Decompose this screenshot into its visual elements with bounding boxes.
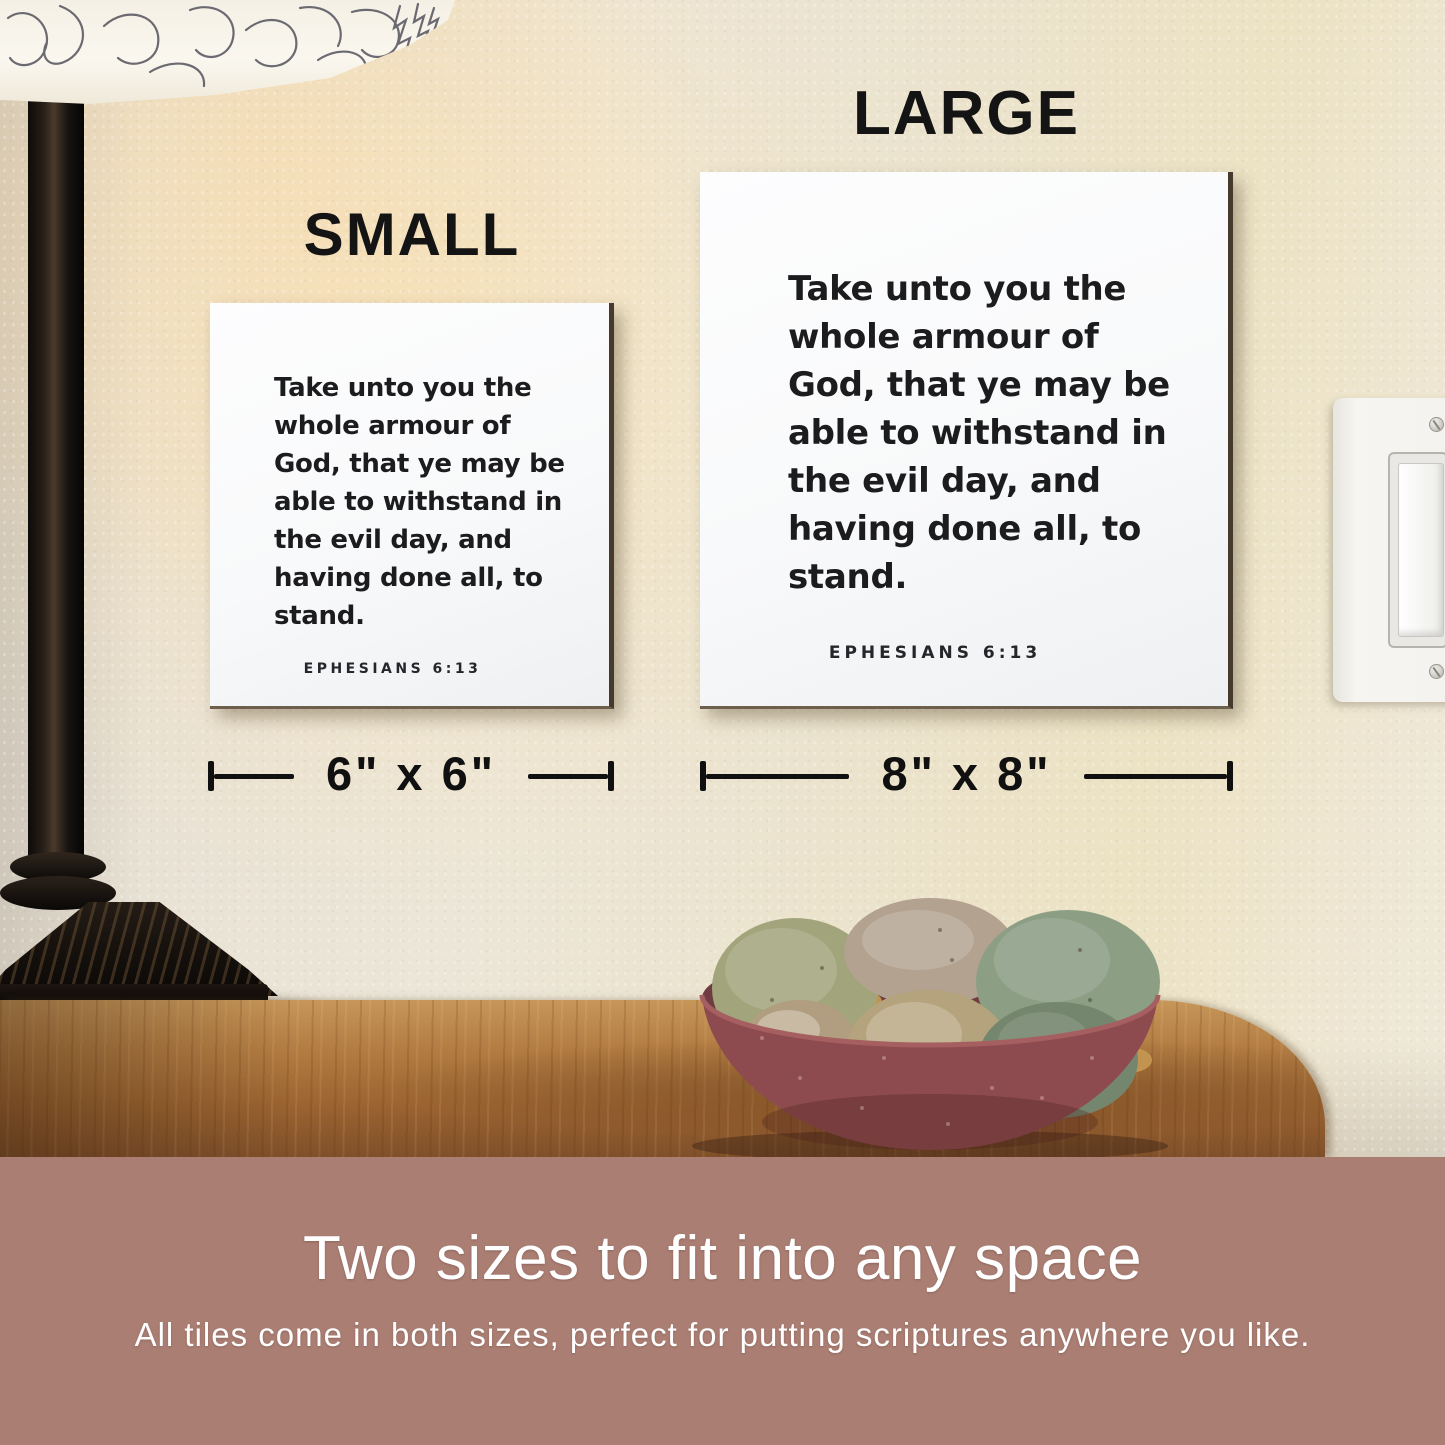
verse-line: the evil day, and [788, 457, 1198, 505]
scripture-reference: EPHESIANS 6:13 [730, 643, 1140, 663]
bowl-of-stones [690, 885, 1170, 1157]
dimension-line-small: 6" x 6" [208, 752, 614, 800]
verse-line: able to withstand in [274, 483, 579, 521]
caption-banner: Two sizes to fit into any space All tile… [0, 1157, 1445, 1445]
verse-line: the evil day, and [274, 521, 579, 559]
dimension-label-small: 6" x 6" [326, 746, 496, 801]
small-size-label: SMALL [210, 200, 614, 269]
dimension-end-cap [608, 761, 614, 791]
verse-line: able to withstand in [788, 409, 1198, 457]
screw-icon [1429, 664, 1444, 679]
banner-title: Two sizes to fit into any space [0, 1157, 1445, 1294]
switch-rocker[interactable] [1398, 463, 1444, 637]
verse-line: whole armour of [274, 407, 579, 445]
dimension-line-segment [1084, 774, 1227, 779]
scripture-reference: EPHESIANS 6:13 [240, 661, 545, 677]
verse-line: God, that ye may be [274, 445, 579, 483]
verse-line: having done all, to [274, 559, 579, 597]
large-size-label: LARGE [700, 78, 1233, 149]
dimension-line-segment [528, 774, 608, 779]
banner-subtitle: All tiles come in both sizes, perfect fo… [0, 1316, 1445, 1354]
verse-line: stand. [788, 553, 1198, 601]
dimension-line-large: 8" x 8" [700, 752, 1233, 800]
verse-line: stand. [274, 597, 579, 635]
dimension-line-segment [706, 774, 849, 779]
verse-line: Take unto you the [274, 369, 579, 407]
verse-line: whole armour of [788, 313, 1198, 361]
scripture-tile-large: Take unto you the whole armour of God, t… [700, 172, 1233, 709]
dimension-label-large: 8" x 8" [881, 746, 1051, 801]
dimension-line-segment [214, 774, 294, 779]
room-photo: Take unto you the whole armour of God, t… [0, 0, 1445, 1157]
verse-line: having done all, to [788, 505, 1198, 553]
verse-line: Take unto you the [788, 265, 1198, 313]
dimension-end-cap [1227, 761, 1233, 791]
verse-line: God, that ye may be [788, 361, 1198, 409]
scripture-tile-small: Take unto you the whole armour of God, t… [210, 303, 614, 709]
lamp-pole [28, 90, 84, 882]
screw-icon [1429, 417, 1444, 432]
